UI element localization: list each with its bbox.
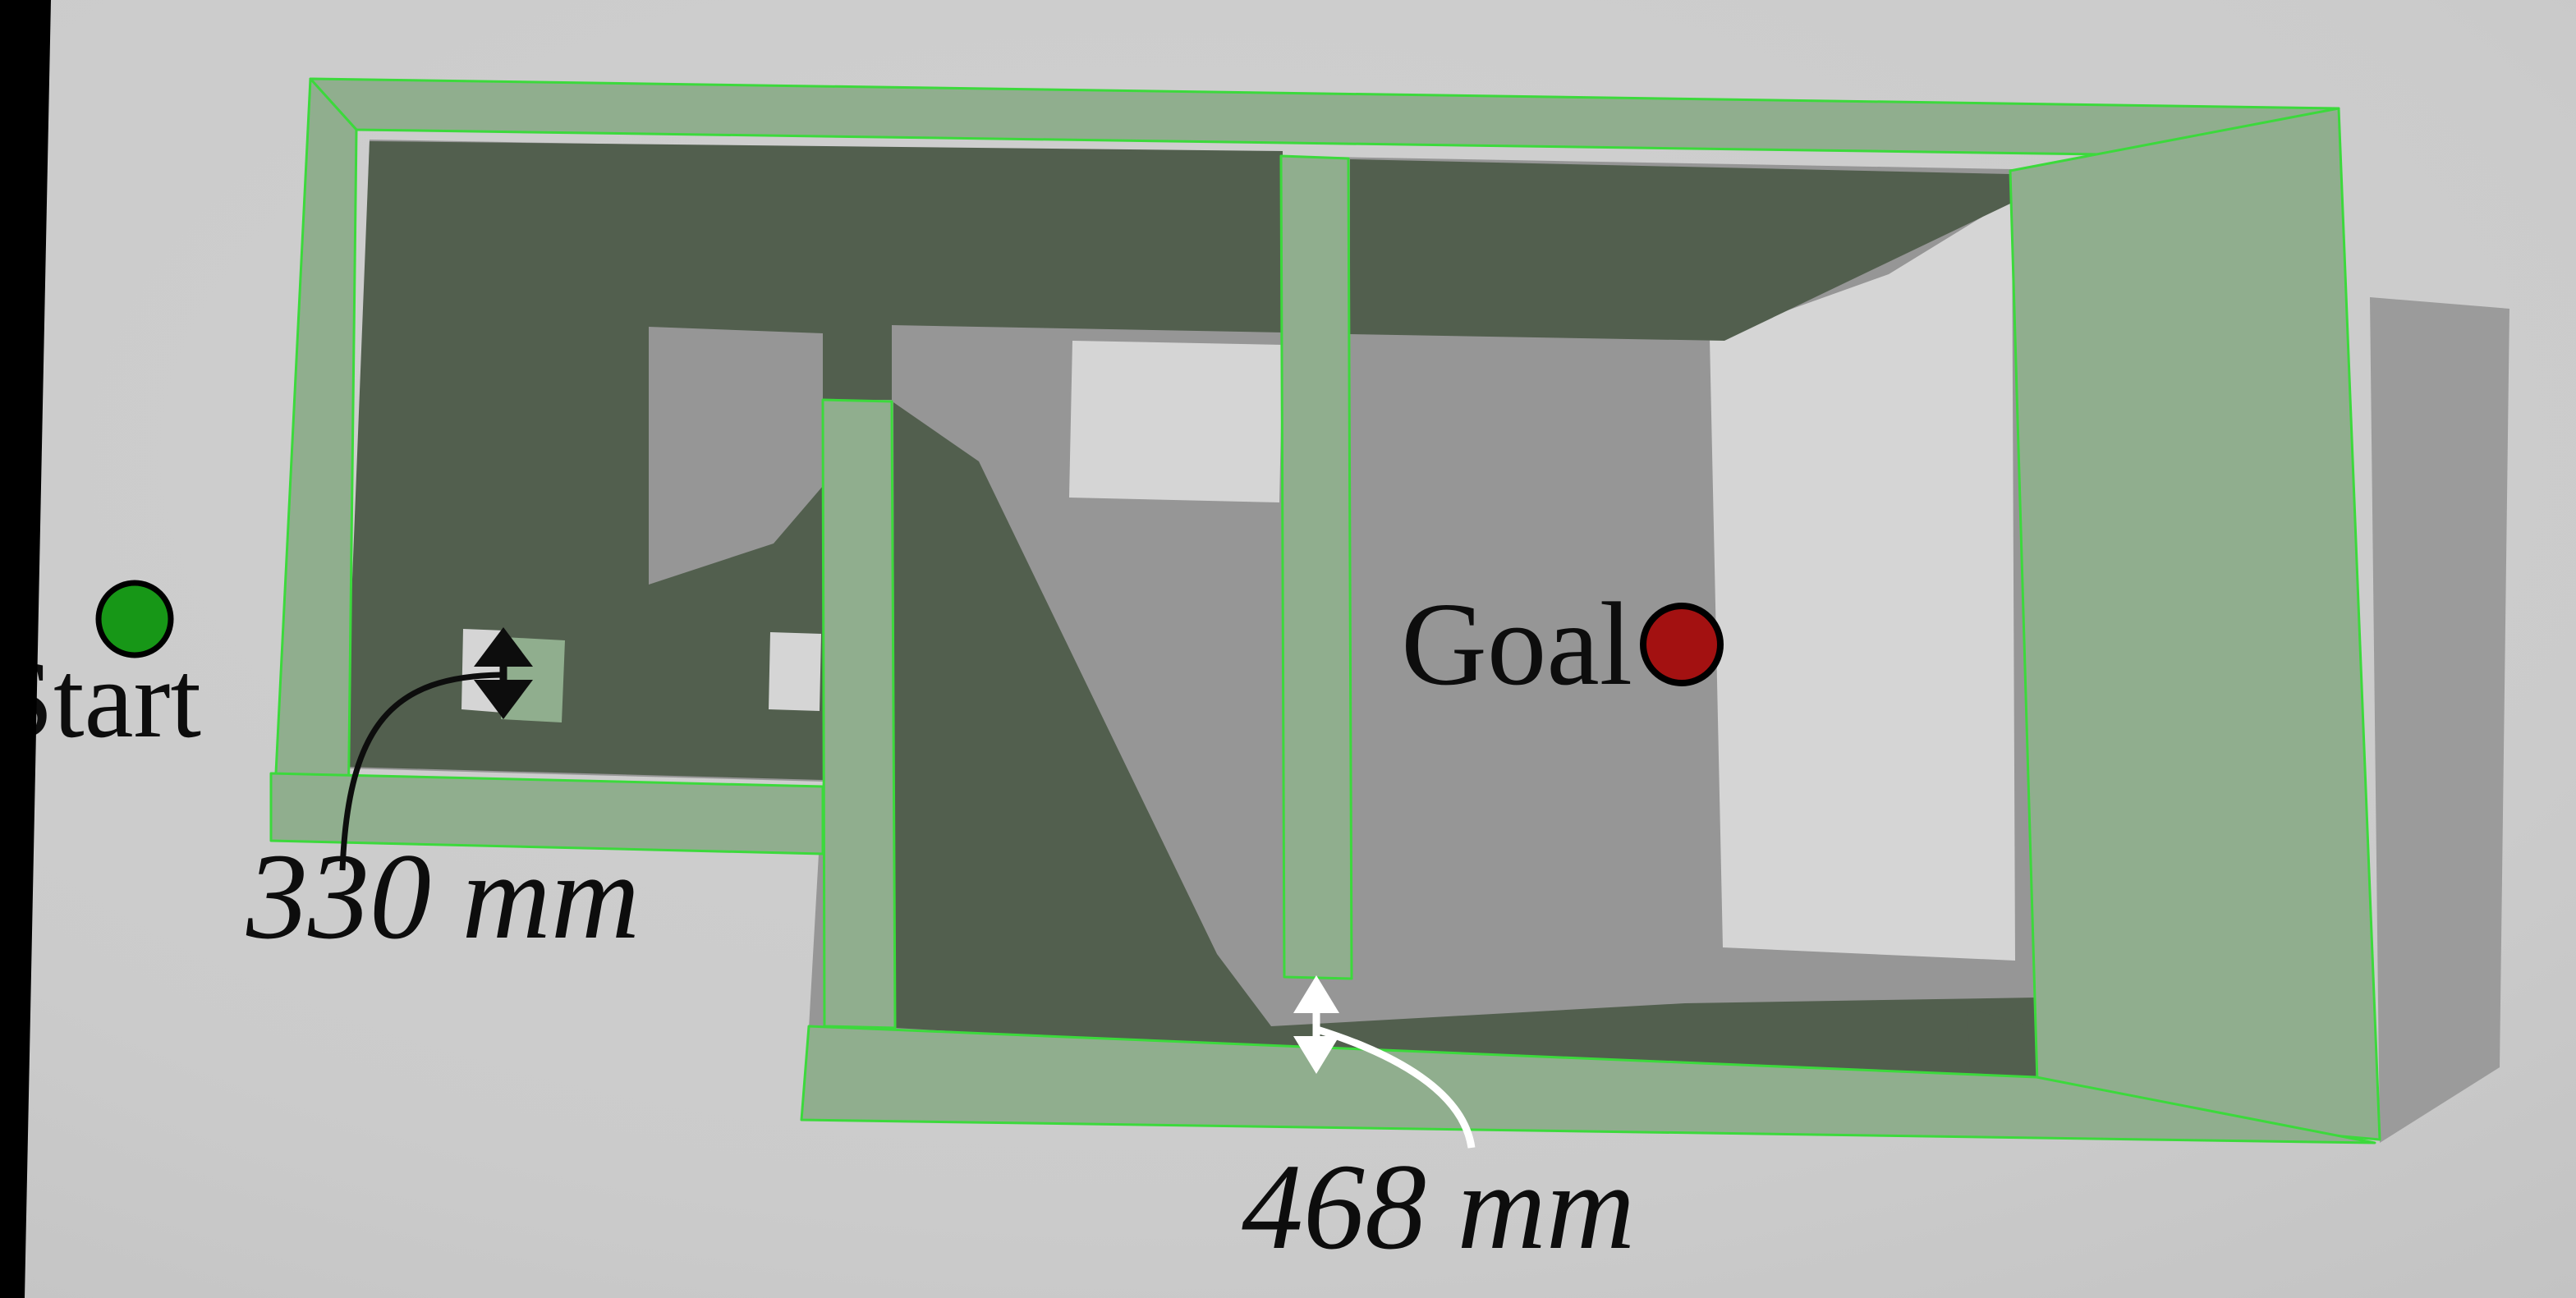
wall-right xyxy=(2010,108,2380,1140)
start-marker-dot xyxy=(99,583,171,655)
goal-marker-dot xyxy=(1643,606,1720,683)
wall-inner-vertical xyxy=(823,400,895,1028)
lit-floor-patch-center xyxy=(1069,341,1283,502)
goal-label: Goal xyxy=(1401,579,1632,710)
measure-468-label: 468 mm xyxy=(1242,1139,1635,1275)
wall-middle-divider xyxy=(1281,156,1352,979)
maze-figure: Start Goal 330 mm 468 mm xyxy=(0,0,2576,1298)
outside-wall-shadow xyxy=(2370,297,2509,1143)
maze-render-canvas: Start Goal 330 mm 468 mm xyxy=(0,0,2576,1298)
lit-floor-patch-small xyxy=(769,632,821,711)
measure-330-label: 330 mm xyxy=(246,828,640,965)
